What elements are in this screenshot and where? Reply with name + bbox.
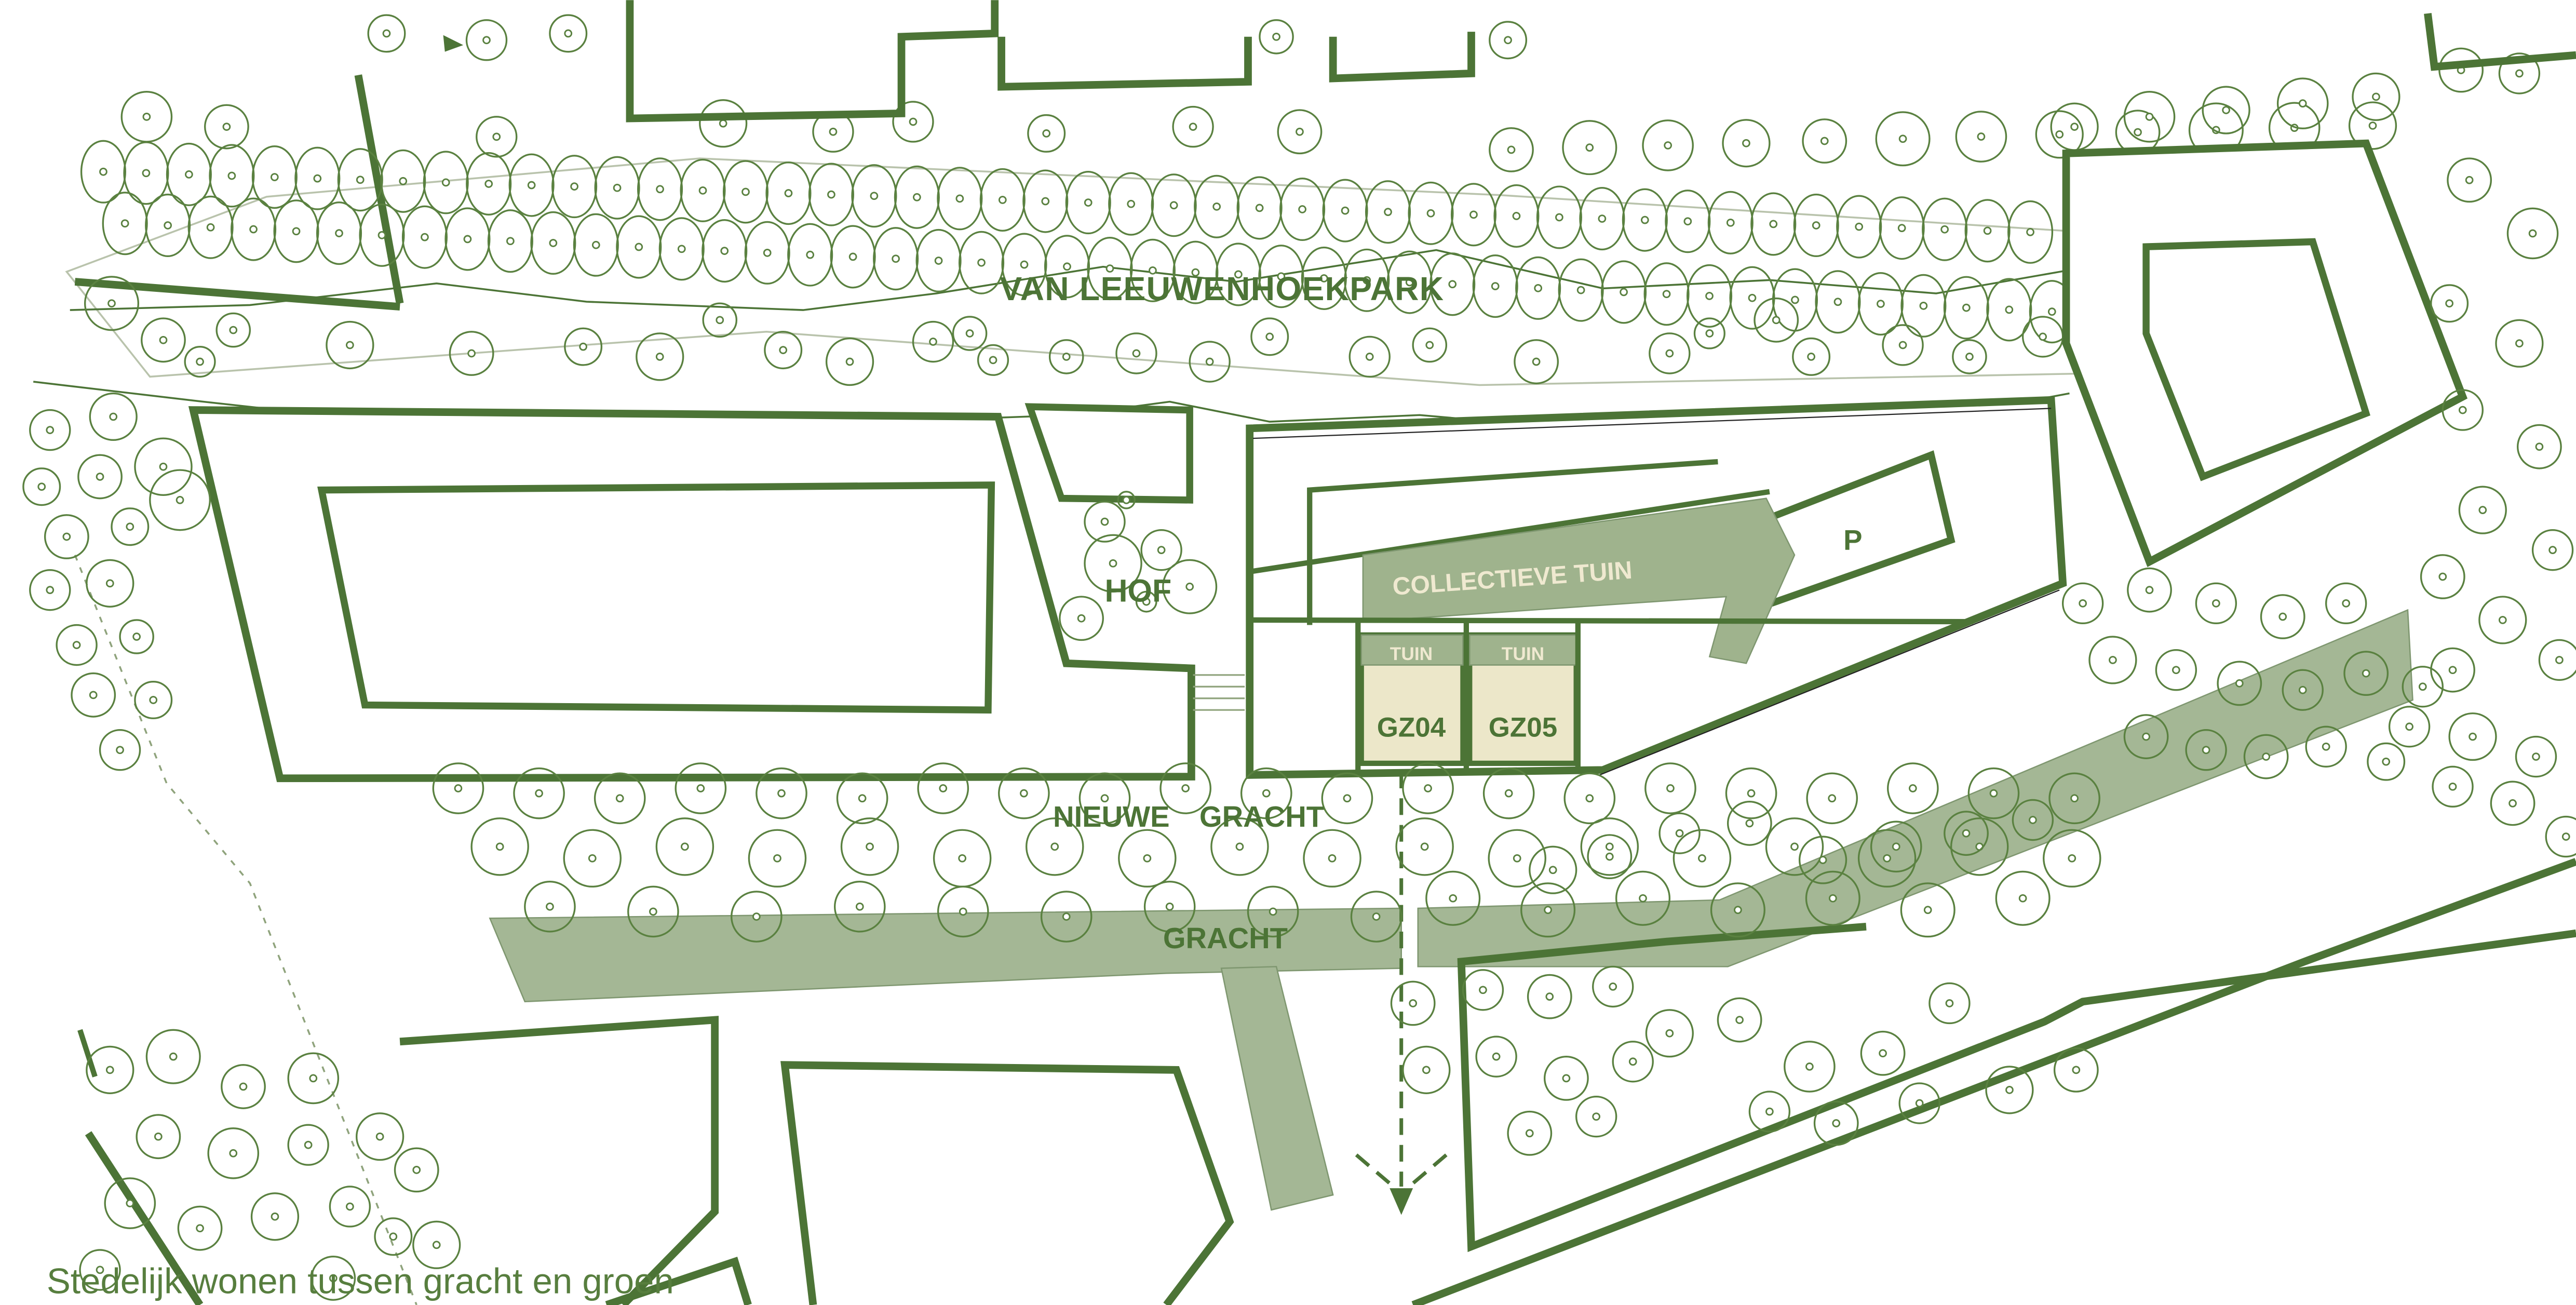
tree-icon bbox=[1237, 177, 1282, 239]
tree-icon bbox=[1876, 112, 1930, 166]
tree-icon bbox=[1728, 802, 1771, 845]
tree-icon bbox=[178, 1206, 221, 1249]
tree-icon bbox=[2261, 595, 2304, 638]
tree-icon bbox=[1956, 112, 2006, 162]
tree-icon bbox=[146, 195, 190, 257]
tree-icon bbox=[2496, 320, 2543, 367]
tree-icon bbox=[122, 92, 171, 142]
tree-icon bbox=[1537, 186, 1582, 248]
tree-icon bbox=[1785, 1042, 1835, 1092]
tree-icon bbox=[150, 470, 210, 530]
tree-icon bbox=[1944, 277, 1988, 339]
tree-icon bbox=[766, 163, 811, 224]
tree-icon bbox=[1413, 328, 1446, 361]
bridge-hatch bbox=[1193, 675, 1245, 710]
tree-icon bbox=[1173, 107, 1213, 147]
tree-icon bbox=[489, 210, 533, 272]
tree-icon bbox=[2196, 583, 2236, 623]
tree-icon bbox=[1565, 773, 1614, 823]
tree-icon bbox=[617, 216, 661, 278]
tree-icon bbox=[446, 208, 490, 270]
tree-icon bbox=[1580, 188, 1624, 250]
tree-icon bbox=[2368, 743, 2405, 780]
tree-icon bbox=[135, 438, 192, 495]
building-top-3 bbox=[1333, 32, 1471, 78]
tree-icon bbox=[2128, 568, 2171, 611]
tree-icon bbox=[1718, 998, 1761, 1041]
tree-icon bbox=[2459, 487, 2506, 533]
tree-icon bbox=[477, 117, 517, 157]
tree-icon bbox=[1901, 883, 1954, 937]
tree-icon bbox=[2507, 208, 2557, 258]
tree-icon bbox=[23, 468, 60, 505]
tree-icon bbox=[1391, 981, 1434, 1025]
tree-icon bbox=[681, 159, 725, 221]
tree-icon bbox=[842, 818, 898, 875]
tree-icon bbox=[703, 220, 747, 282]
tree-icon bbox=[574, 214, 618, 276]
tree-icon bbox=[1396, 818, 1453, 875]
parking-label: P bbox=[1843, 524, 1862, 556]
tree-icon bbox=[2156, 650, 2196, 690]
tree-icon bbox=[703, 303, 736, 337]
tree-icon bbox=[1861, 1032, 1904, 1075]
tree-icon bbox=[2539, 640, 2576, 680]
tree-icon bbox=[1987, 279, 2031, 341]
tree-icon bbox=[749, 830, 805, 886]
tree-icon bbox=[953, 317, 987, 350]
tree-icon bbox=[916, 230, 961, 292]
tree-icon bbox=[564, 830, 621, 886]
tree-icon bbox=[1280, 179, 1325, 240]
axis-arrow-tip bbox=[1390, 1188, 1413, 1215]
tree-icon bbox=[330, 1187, 370, 1227]
tree-icon bbox=[874, 228, 918, 290]
tree-icon bbox=[1322, 773, 1372, 823]
tree-icon bbox=[471, 818, 528, 875]
tree-icon bbox=[2421, 555, 2464, 598]
tree-icon bbox=[1623, 189, 1667, 251]
tree-icon bbox=[381, 150, 425, 212]
tree-icon bbox=[1643, 120, 1693, 170]
tree-icon bbox=[1323, 180, 1367, 241]
tree-icon bbox=[1766, 818, 1823, 875]
tree-icon bbox=[1563, 121, 1616, 174]
tree-icon bbox=[509, 154, 554, 216]
tree-icon bbox=[531, 212, 575, 274]
tree-icon bbox=[78, 455, 122, 498]
tree-icon bbox=[1490, 128, 1533, 171]
tree-icon bbox=[1923, 198, 1967, 260]
tree-icon bbox=[1794, 195, 1838, 257]
tree-icon bbox=[1050, 340, 1083, 373]
park-label: VAN LEEUWENHOEKPARK bbox=[1000, 270, 1444, 307]
tree-icon bbox=[724, 161, 768, 223]
tree-icon bbox=[146, 1030, 200, 1083]
caption: Stedelijk wonen tussen gracht en groen bbox=[47, 1261, 674, 1301]
tree-icon bbox=[1119, 830, 1176, 886]
tree-icon bbox=[745, 222, 789, 284]
tree-icon bbox=[72, 674, 115, 717]
tree-icon bbox=[357, 1113, 403, 1160]
building-mark bbox=[443, 35, 464, 52]
tree-icon bbox=[30, 570, 70, 610]
tree-icon bbox=[1350, 337, 1390, 376]
park-edge-north bbox=[358, 75, 400, 304]
tree-icon bbox=[2353, 73, 2399, 120]
tree-icon bbox=[2516, 737, 2556, 777]
tree-icon bbox=[2023, 317, 2063, 357]
tree-icon bbox=[1646, 1010, 1693, 1057]
tree-icon bbox=[638, 158, 682, 220]
tree-icon bbox=[1028, 115, 1065, 152]
east-courtyard-building bbox=[2066, 143, 2463, 561]
tree-icon bbox=[112, 508, 149, 545]
tree-icon bbox=[1723, 120, 1770, 167]
tree-icon bbox=[1576, 1097, 1616, 1137]
tree-icon bbox=[810, 164, 854, 225]
tree-icon bbox=[960, 232, 1004, 293]
tree-icon bbox=[1650, 333, 1690, 373]
tree-icon bbox=[1613, 1042, 1653, 1082]
tree-icon bbox=[2431, 285, 2468, 322]
tree-icon bbox=[1489, 830, 1545, 886]
tree-icon bbox=[137, 1115, 180, 1158]
tree-icon bbox=[938, 168, 982, 230]
tree-icon bbox=[1152, 174, 1196, 236]
tree-icon bbox=[1403, 1046, 1450, 1093]
tree-icon bbox=[1803, 119, 1846, 163]
tree-icon bbox=[466, 20, 506, 60]
tree-icon bbox=[450, 332, 493, 375]
tree-icon bbox=[232, 198, 276, 260]
west-block bbox=[193, 410, 1191, 778]
tree-icon bbox=[980, 169, 1024, 231]
tree-icon bbox=[2431, 648, 2474, 691]
tree-icon bbox=[2203, 87, 2249, 133]
building-top-1 bbox=[630, 0, 995, 118]
tree-icon bbox=[827, 339, 873, 385]
tree-icon bbox=[188, 196, 233, 258]
tree-icon bbox=[100, 730, 140, 770]
tree-icon bbox=[45, 515, 88, 558]
tree-icon bbox=[2433, 766, 2473, 806]
tree-icon bbox=[2055, 1048, 2098, 1092]
tree-icon bbox=[1473, 255, 1517, 317]
tree-icon bbox=[217, 313, 250, 346]
tree-icon bbox=[1559, 259, 1603, 321]
tree-icon bbox=[788, 224, 832, 286]
tree-icon bbox=[552, 156, 597, 218]
tree-icon bbox=[1476, 1037, 1516, 1077]
tree-icon bbox=[288, 1053, 338, 1103]
building-south-mid bbox=[785, 1065, 1230, 1305]
tree-icon bbox=[1116, 333, 1156, 373]
tree-icon bbox=[934, 830, 991, 886]
tree-icon bbox=[1195, 176, 1239, 237]
tree-icon bbox=[1278, 110, 1321, 153]
tree-icon bbox=[1666, 191, 1710, 252]
tree-icon bbox=[467, 153, 511, 215]
tree-icon bbox=[124, 142, 168, 204]
hof-label: HOF bbox=[1105, 573, 1172, 609]
tree-icon bbox=[1490, 22, 1527, 59]
tree-icon bbox=[2089, 637, 2136, 683]
tree-icon bbox=[105, 1178, 155, 1228]
tree-icon bbox=[2044, 830, 2100, 886]
tree-icon bbox=[2546, 817, 2576, 857]
tree-icon bbox=[1109, 173, 1153, 235]
tree-icon bbox=[1516, 257, 1560, 319]
site-plan: VAN LEEUWENHOEKPARK HOF COLLECTIEVE TUIN… bbox=[0, 0, 2576, 1305]
gracht-label: GRACHT bbox=[1163, 922, 1288, 954]
west-block-courtyard bbox=[321, 485, 991, 710]
tree-icon bbox=[295, 147, 340, 209]
tree-icon bbox=[1793, 339, 1830, 375]
tree-icon bbox=[852, 165, 896, 227]
tree-icon bbox=[1837, 196, 1881, 258]
tree-icon bbox=[1545, 1057, 1588, 1100]
tree-icon bbox=[1883, 325, 1923, 365]
tree-icon bbox=[135, 682, 172, 719]
tree-icon bbox=[103, 193, 147, 254]
tree-icon bbox=[1508, 1112, 1551, 1155]
tree-icon bbox=[1463, 970, 1503, 1010]
tree-icon bbox=[274, 200, 318, 262]
tree-icon bbox=[1494, 185, 1539, 247]
tree-icon bbox=[700, 100, 747, 147]
tree-icon bbox=[1251, 318, 1288, 355]
tree-icon bbox=[2390, 707, 2430, 747]
tree-icon bbox=[2051, 103, 2098, 150]
tree-icon bbox=[2278, 78, 2328, 128]
tree-icon bbox=[375, 1218, 412, 1255]
tree-icon bbox=[1528, 975, 1571, 1018]
tree-icon bbox=[208, 1128, 258, 1178]
tree-icon bbox=[87, 560, 133, 607]
gz05-label: GZ05 bbox=[1489, 712, 1557, 743]
tree-icon bbox=[2063, 583, 2103, 623]
tree-icon bbox=[2448, 158, 2491, 201]
tree-icon bbox=[222, 1065, 265, 1108]
tree-icon bbox=[1751, 193, 1796, 255]
tree-icon bbox=[1593, 966, 1633, 1006]
tree-icon bbox=[1816, 271, 1860, 333]
tree-icon bbox=[1484, 769, 1534, 818]
tree-icon bbox=[1023, 170, 1068, 232]
tree-icon bbox=[1953, 340, 1986, 373]
tree-icon bbox=[317, 203, 361, 264]
tree-icon bbox=[659, 218, 704, 280]
tree-icon bbox=[1602, 261, 1646, 323]
tree-icon bbox=[1066, 172, 1110, 234]
tree-icon bbox=[1646, 763, 1695, 813]
top-buildings bbox=[443, 0, 2576, 118]
tuin-label-right: TUIN bbox=[1502, 644, 1544, 664]
tree-icon bbox=[252, 1193, 299, 1240]
tree-icon bbox=[1901, 275, 1946, 337]
tree-icon bbox=[1190, 342, 1230, 382]
tree-icon bbox=[395, 1148, 438, 1191]
tree-icon bbox=[2326, 583, 2366, 623]
tree-icon bbox=[1807, 773, 1857, 823]
gz04-label: GZ04 bbox=[1377, 712, 1446, 743]
tree-icon bbox=[1660, 813, 1700, 853]
tree-icon bbox=[2439, 48, 2483, 91]
tree-icon bbox=[120, 620, 153, 653]
tree-icon bbox=[1880, 197, 1924, 259]
tuin-label-left: TUIN bbox=[1390, 644, 1433, 664]
tree-icon bbox=[913, 322, 953, 362]
tree-icon bbox=[403, 206, 447, 268]
tree-icon bbox=[1588, 835, 1631, 878]
tree-icon bbox=[2533, 530, 2573, 570]
tree-icon bbox=[1674, 830, 1730, 886]
tree-icon bbox=[1888, 763, 1938, 813]
tree-icon bbox=[368, 15, 405, 52]
building-top-2 bbox=[1002, 37, 1248, 87]
tree-icon bbox=[1755, 299, 1798, 342]
tree-icon bbox=[288, 1125, 328, 1165]
tree-icon bbox=[1726, 769, 1776, 818]
tree-icon bbox=[895, 166, 939, 228]
park-area bbox=[33, 75, 2093, 432]
hof-building bbox=[1030, 407, 1190, 500]
tree-icon bbox=[1304, 830, 1360, 886]
tree-icon bbox=[2449, 714, 2496, 760]
tree-icon bbox=[1644, 263, 1689, 325]
building-top-right bbox=[2427, 14, 2576, 67]
tree-icon bbox=[1730, 267, 1774, 329]
tree-icon bbox=[1694, 318, 1724, 348]
tree-icon bbox=[1515, 340, 1558, 383]
gracht-branch-south bbox=[1221, 966, 1333, 1210]
tree-icon bbox=[550, 15, 587, 52]
tree-icon bbox=[57, 625, 97, 665]
tree-icon bbox=[2518, 425, 2561, 468]
tree-icon bbox=[1965, 200, 2009, 262]
tree-icon bbox=[2008, 201, 2053, 263]
tree-icon bbox=[1060, 597, 1103, 640]
tree-icon bbox=[30, 410, 70, 450]
tree-icon bbox=[2479, 597, 2526, 643]
nieuwe-gracht-label: NIEUWE GRACHT bbox=[1053, 800, 1324, 833]
tree-icon bbox=[2491, 782, 2534, 825]
tree-icon bbox=[831, 226, 875, 288]
tree-icon bbox=[205, 105, 248, 148]
tree-icon bbox=[142, 318, 185, 361]
tree-icon bbox=[1930, 983, 1970, 1023]
central-parcel bbox=[1250, 400, 2063, 775]
tree-icon bbox=[1996, 871, 2049, 925]
tree-icon bbox=[90, 394, 137, 440]
tree-icon bbox=[1708, 192, 1752, 253]
tree-icon bbox=[2124, 92, 2174, 142]
tree-icon bbox=[656, 818, 713, 875]
tree-icon bbox=[765, 332, 802, 369]
tree-icon bbox=[1530, 846, 1576, 893]
tree-icon bbox=[1260, 20, 1293, 53]
